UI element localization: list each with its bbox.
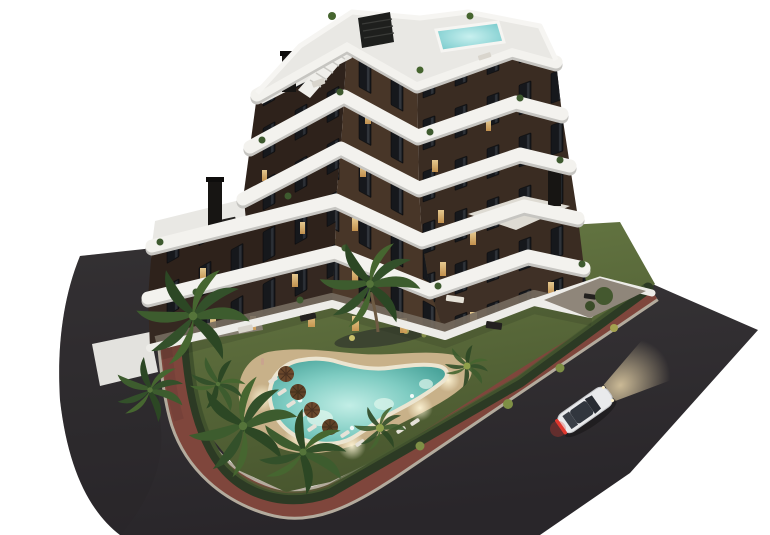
roof-plant: [417, 67, 424, 74]
chimney-cap: [206, 177, 224, 182]
pool-light: [419, 379, 433, 389]
pool-light-dot: [410, 394, 414, 398]
person-by-pool: [261, 358, 264, 365]
shrub: [556, 364, 565, 373]
garden-tree: [585, 301, 595, 311]
shrub: [503, 399, 513, 409]
island-plant: [349, 335, 355, 341]
shrub: [416, 442, 425, 451]
garden-tree: [595, 287, 613, 305]
roof-plant: [467, 13, 474, 20]
chimney: [208, 180, 222, 226]
architectural-render: [0, 0, 770, 535]
rooftop-pergola: [358, 12, 394, 48]
pool-light-dot: [350, 426, 354, 430]
roof-plant: [328, 12, 336, 20]
shrub: [610, 324, 618, 332]
